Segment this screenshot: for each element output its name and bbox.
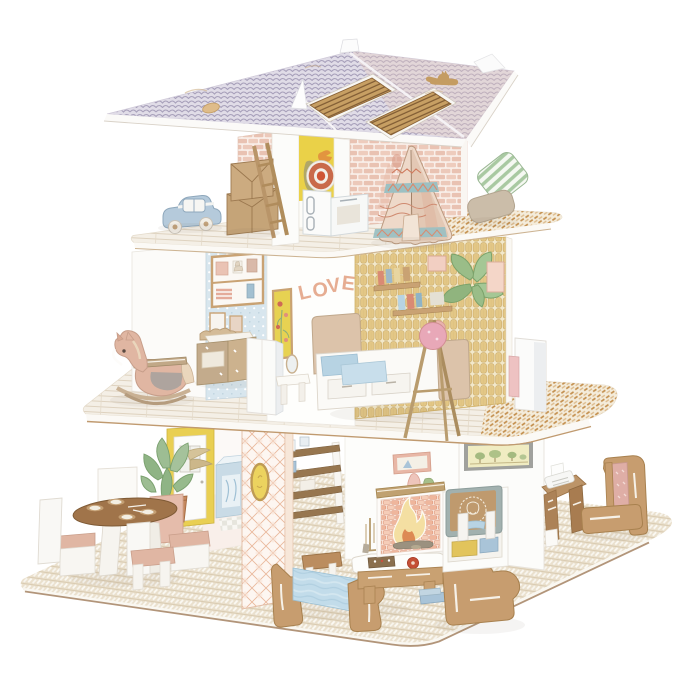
svg-text:E: E	[340, 272, 356, 295]
